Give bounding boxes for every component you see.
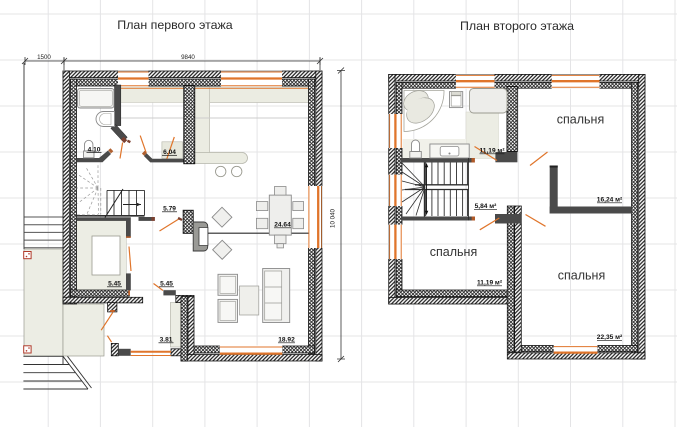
svg-text:План первого этажа: План первого этажа [117, 18, 232, 32]
svg-text:10 040: 10 040 [330, 208, 337, 227]
svg-text:спальня: спальня [557, 113, 604, 127]
svg-text:спальня: спальня [430, 245, 477, 259]
svg-text:9840: 9840 [181, 54, 195, 61]
svg-text:План второго этажа: План второго этажа [460, 19, 574, 33]
svg-text:спальня: спальня [558, 269, 605, 283]
svg-text:1500: 1500 [37, 54, 51, 61]
